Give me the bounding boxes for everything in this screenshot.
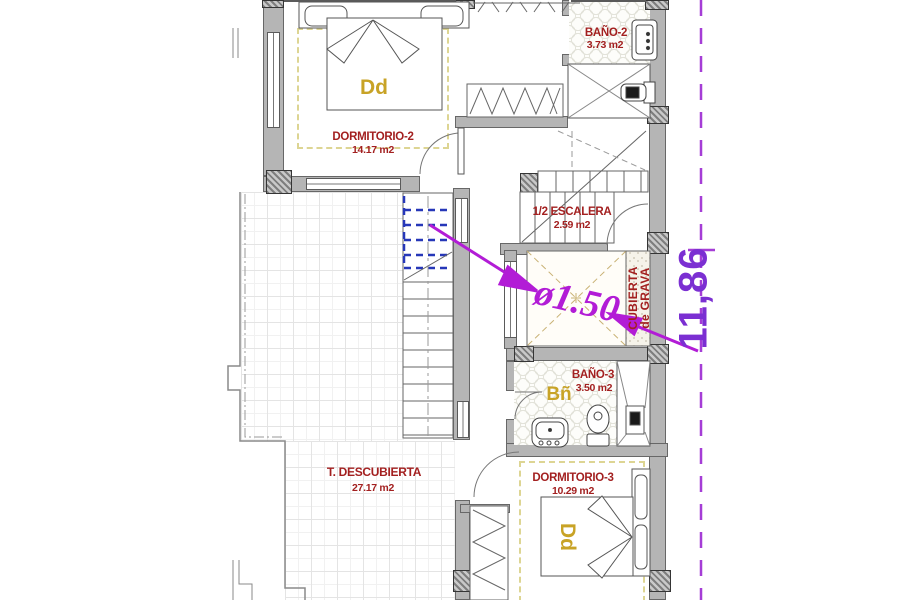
label-escalera-area: 2.59 m2 <box>554 219 590 231</box>
label-dormitorio2-code: Dd <box>360 76 388 100</box>
label-vertical-dimension: 11,86 <box>672 247 717 350</box>
label-escalera-name: 1/2 ESCALERA <box>533 206 612 218</box>
plan-linework <box>0 0 900 600</box>
closet-hall <box>467 84 563 117</box>
label-terraza-name: T. DESCUBIERTA <box>327 465 421 479</box>
toilet-bano2 <box>621 82 655 103</box>
door-bano3 <box>515 392 542 419</box>
sink-bano2 <box>632 20 657 60</box>
left-edge-fragment <box>233 28 238 58</box>
stairs-terrace <box>403 193 453 438</box>
label-dormitorio3-area: 10.29 m2 <box>552 485 594 497</box>
label-terraza-area: 27.17 m2 <box>352 482 394 494</box>
label-dormitorio3-name: DORMITORIO-3 <box>532 472 613 484</box>
door-dormitorio-3 <box>474 452 519 497</box>
terrace-boundary <box>228 192 305 600</box>
label-bano3-area: 3.50 m2 <box>576 382 612 394</box>
label-bano3-name: BAÑO-3 <box>572 369 614 381</box>
floor-plan-canvas: BAÑO-2 3.73 m2 Dd DORMITORIO-2 14.17 m2 … <box>0 0 900 600</box>
label-dormitorio3-code: Dd <box>555 523 579 551</box>
label-bano2-area: 3.73 m2 <box>587 39 623 51</box>
toilet-bano3 <box>587 405 609 446</box>
label-cubierta-grava: CUBIERTA de GRAVA <box>627 266 651 330</box>
label-bano2-name: BAÑO-2 <box>585 27 627 39</box>
label-dormitorio2-name: DORMITORIO-2 <box>332 131 413 143</box>
label-bano3-code: Bñ <box>546 384 571 406</box>
railing-marks <box>473 2 580 12</box>
shower-bano3 <box>617 361 650 446</box>
label-cubierta-line2: de GRAVA <box>639 266 651 330</box>
label-dormitorio2-area: 14.17 m2 <box>352 144 394 156</box>
closet-bottom <box>470 506 508 600</box>
door-dormitorio-2 <box>420 128 464 174</box>
sink-bano3 <box>532 418 568 447</box>
